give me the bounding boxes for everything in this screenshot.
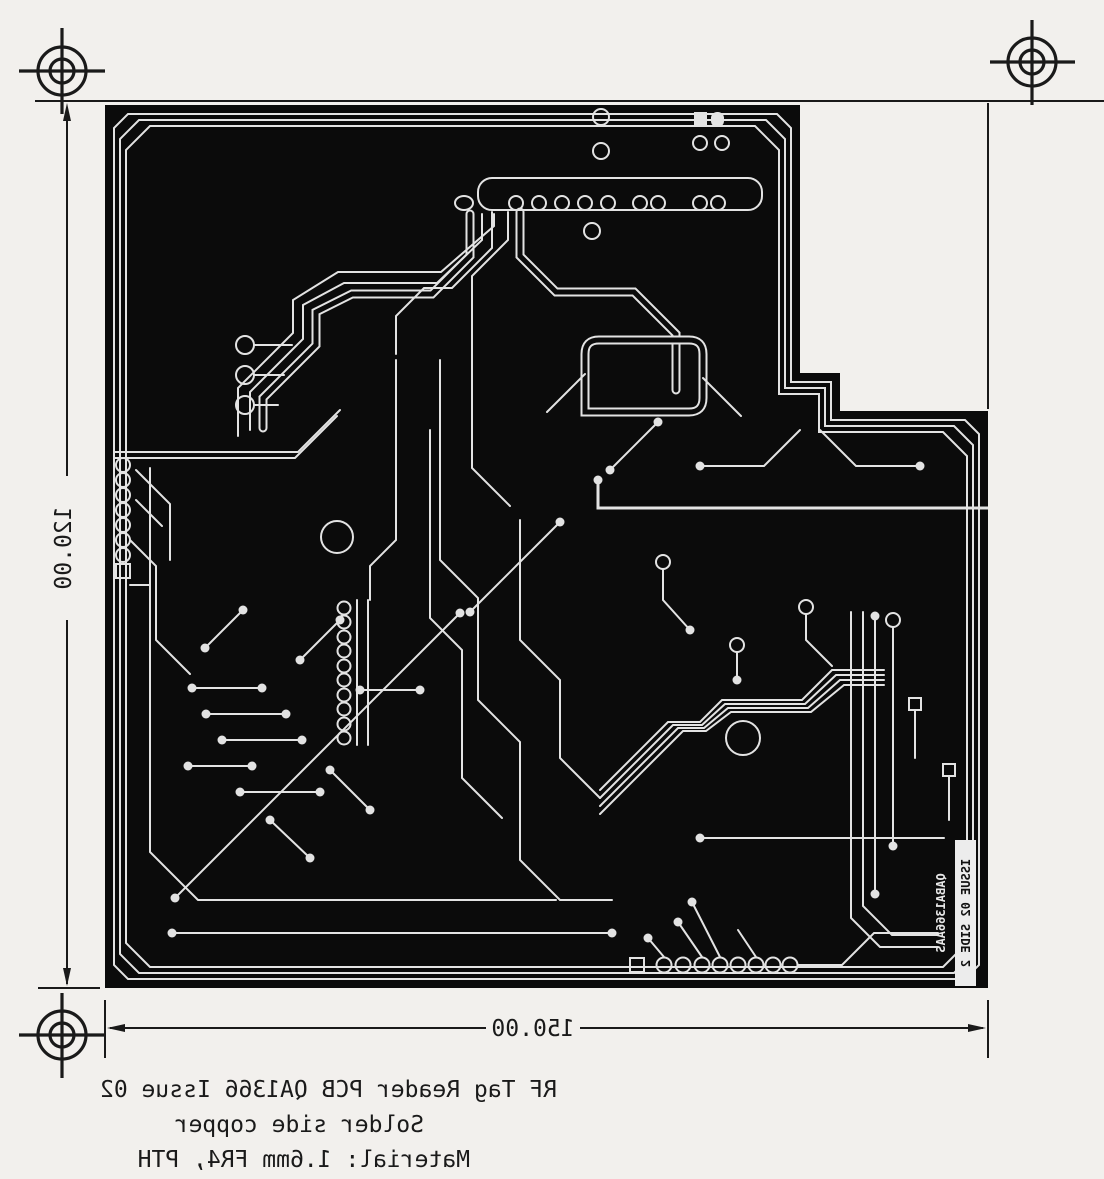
- title-line-2: Solder side copper: [175, 1112, 424, 1138]
- fiducial-target-bottom-left: [19, 993, 105, 1078]
- title-line-1: RF Tag Reader PCB QA1366 Issue 02: [100, 1077, 557, 1103]
- fiducial-target-top-right: [990, 20, 1075, 105]
- title-line-3: Material: 1.6mm FR4, PTH: [138, 1147, 470, 1173]
- title-block: RF Tag Reader PCB QA1366 Issue 02 Solder…: [100, 1077, 557, 1173]
- scanned-drawing-page: 120.00 150.00: [0, 0, 1104, 1179]
- board-height-dimension-label: 120.00: [51, 506, 77, 589]
- pcb-artwork-canvas: 120.00 150.00: [0, 0, 1104, 1179]
- film-id-text: QABA1366AAS: [934, 873, 948, 952]
- board-copper-pour: [105, 105, 988, 988]
- issue-label-text: ISSUE 02 SIDE 2: [959, 859, 973, 967]
- board-width-dimension-label: 150.00: [491, 1016, 574, 1042]
